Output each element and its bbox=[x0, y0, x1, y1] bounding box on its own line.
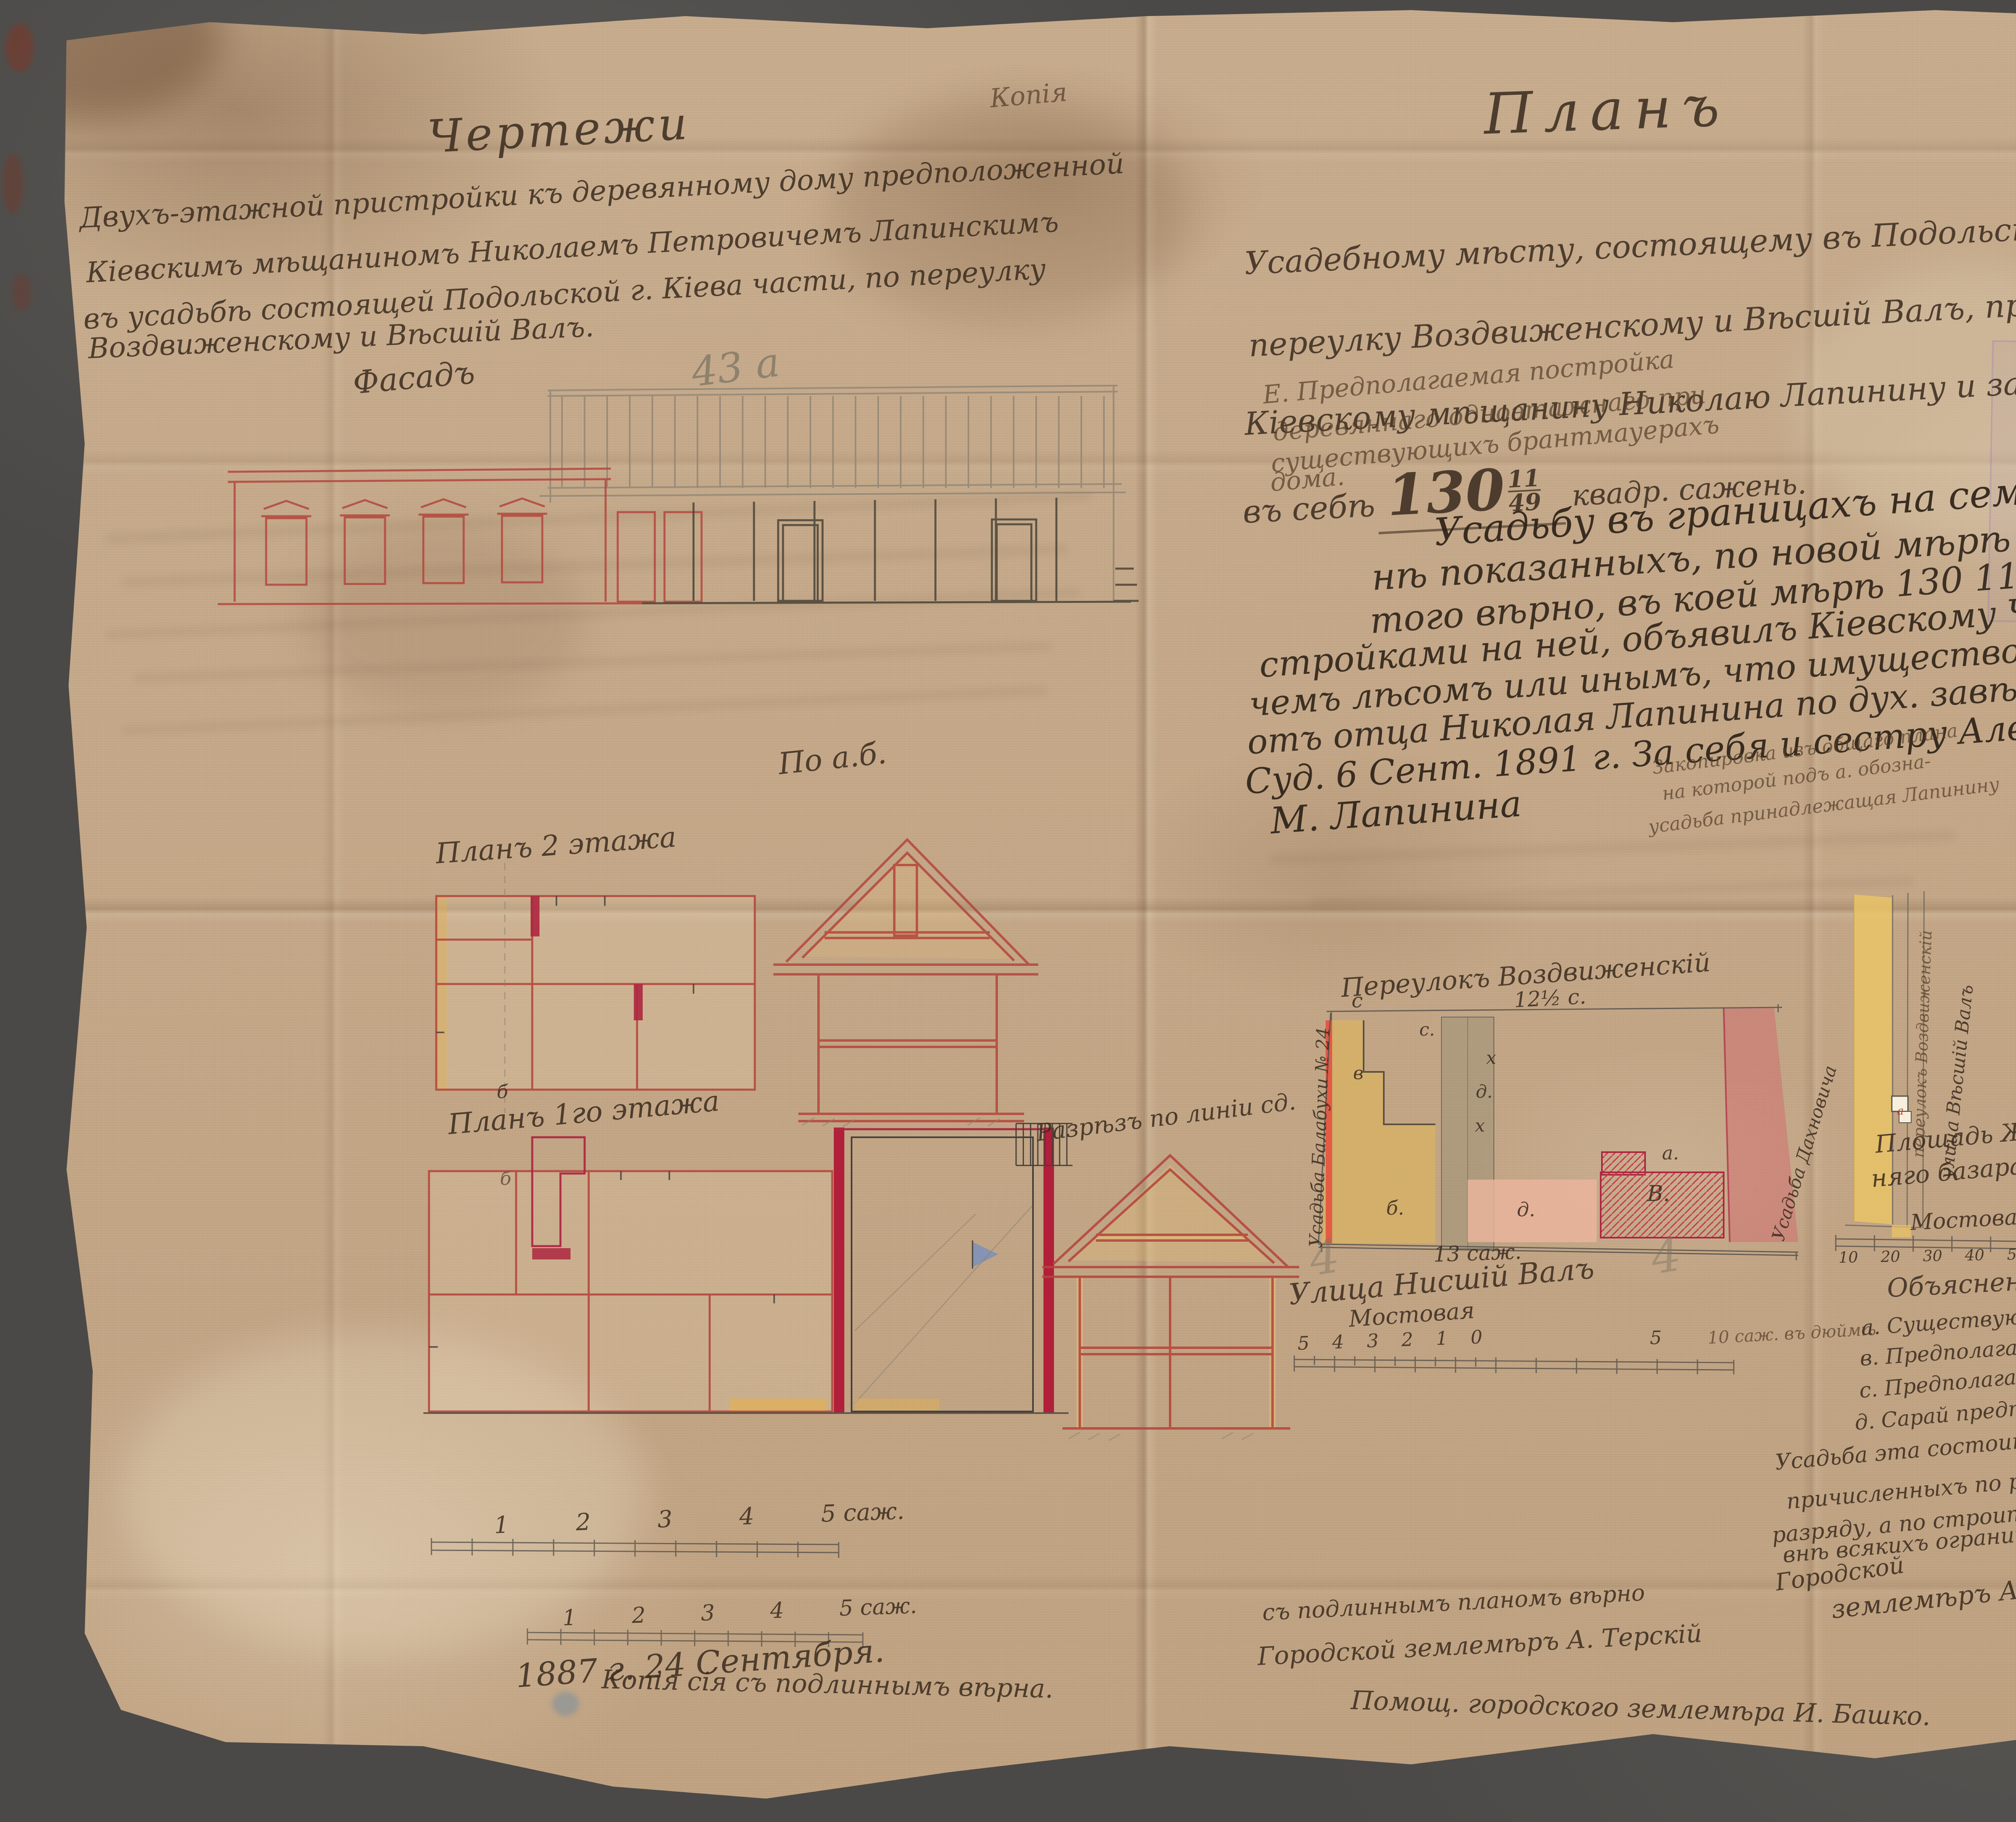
section-line-marker: б bbox=[497, 1081, 508, 1103]
siteplan-letter: с. bbox=[1419, 1019, 1435, 1040]
siteplan-drawing bbox=[1278, 960, 1814, 1282]
siteplan-letter: б. bbox=[1386, 1197, 1404, 1220]
keyplan-square-marker: а bbox=[1897, 1104, 1904, 1117]
section-cd-drawing bbox=[1028, 1121, 1310, 1448]
plan2-drawing bbox=[411, 863, 794, 1113]
copy-attestation-signature: Помощ. городского землемѣра И. Башко. bbox=[1350, 1686, 1931, 1732]
explanation-heading: Объясненіе bbox=[1886, 1265, 2016, 1303]
siteplan-scale-five: 5 bbox=[1650, 1327, 1662, 1349]
section-ab-label: По а.б. bbox=[777, 736, 888, 782]
edge-residue-mark bbox=[6, 23, 34, 72]
bleed-through-line bbox=[121, 686, 1048, 736]
blue-smudge bbox=[552, 1692, 579, 1716]
siteplan-letter: д. bbox=[1476, 1082, 1493, 1102]
siteplan-letter: в bbox=[1353, 1063, 1364, 1084]
scan-background: Копія Копія Чертежи Двухъ-этажной пристр… bbox=[0, 0, 2016, 1822]
siteplan-scale-ruler bbox=[1290, 1349, 1742, 1377]
stain bbox=[0, 0, 222, 121]
edge-residue-mark bbox=[2, 153, 23, 214]
section-ab-drawing bbox=[758, 815, 1048, 1137]
plan-title: Планъ bbox=[1483, 73, 1731, 147]
bleed-through-line bbox=[133, 641, 1052, 683]
siteplan-letter: В. bbox=[1647, 1181, 1670, 1206]
plan1-drawing bbox=[411, 1121, 1081, 1460]
siteplan-scale-label: 10 саж. въ дюймѣ bbox=[1707, 1319, 1876, 1348]
surveyor-attestation: Городской землемѣръ А. Терскій bbox=[1257, 1618, 1703, 1671]
siteplan-letter: а. bbox=[1662, 1142, 1679, 1164]
explanation-item: а. Существующій домъ. bbox=[1860, 1297, 2016, 1340]
edge-residue-mark bbox=[12, 274, 31, 311]
area-fraction-numerator: 11 bbox=[1507, 467, 1540, 491]
facade-drawing bbox=[190, 343, 1137, 625]
scale1-ruler bbox=[427, 1532, 843, 1561]
fabric-sheet: Копія Копія Чертежи Двухъ-этажной пристр… bbox=[0, 0, 2016, 1822]
siteplan-letter: х bbox=[1475, 1115, 1485, 1136]
plan-intro-line: Усадебному мѣсту, состоящему въ Подольск… bbox=[1243, 196, 2016, 282]
siteplan-letter: д. bbox=[1517, 1199, 1535, 1221]
siteplan-letter: х bbox=[1486, 1048, 1496, 1068]
copy-attestation-line: Копія сія съ подлиннымъ вѣрна. bbox=[601, 1665, 1054, 1704]
bleed-through-line bbox=[1270, 831, 1956, 864]
keyplan-scale-numbers: 10 20 30 40 50 bbox=[1839, 1245, 2016, 1266]
